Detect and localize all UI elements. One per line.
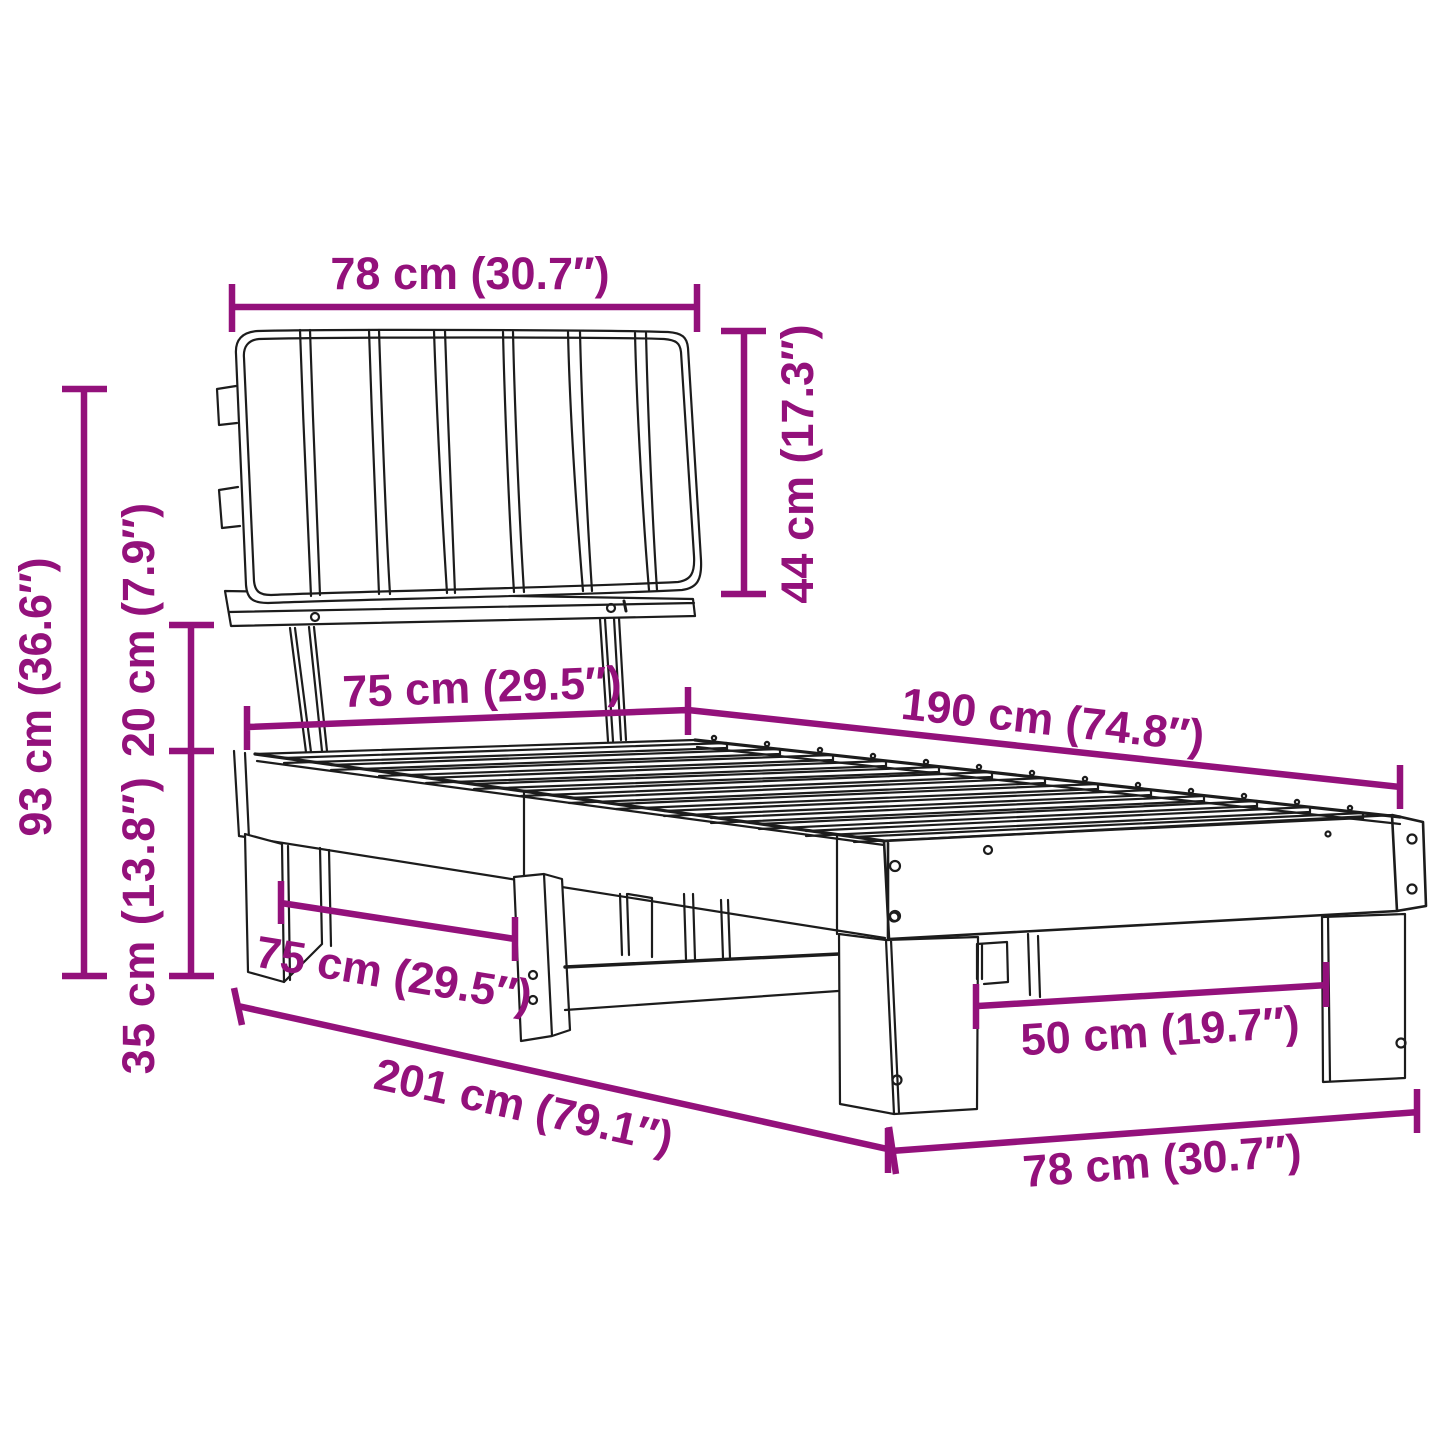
svg-text:50 cm (19.7″): 50 cm (19.7″)	[1019, 996, 1301, 1065]
svg-text:93 cm (36.6″): 93 cm (36.6″)	[10, 557, 61, 836]
svg-text:35 cm (13.8″): 35 cm (13.8″)	[113, 776, 164, 1075]
svg-text:78 cm (30.7″): 78 cm (30.7″)	[330, 248, 609, 299]
svg-text:44 cm (17.3″): 44 cm (17.3″)	[772, 324, 823, 603]
svg-text:20 cm (7.9″): 20 cm (7.9″)	[113, 503, 164, 757]
svg-text:75 cm (29.5″): 75 cm (29.5″)	[252, 926, 536, 1021]
svg-text:75 cm (29.5″): 75 cm (29.5″)	[342, 656, 623, 717]
svg-text:201 cm (79.1″): 201 cm (79.1″)	[370, 1048, 678, 1163]
